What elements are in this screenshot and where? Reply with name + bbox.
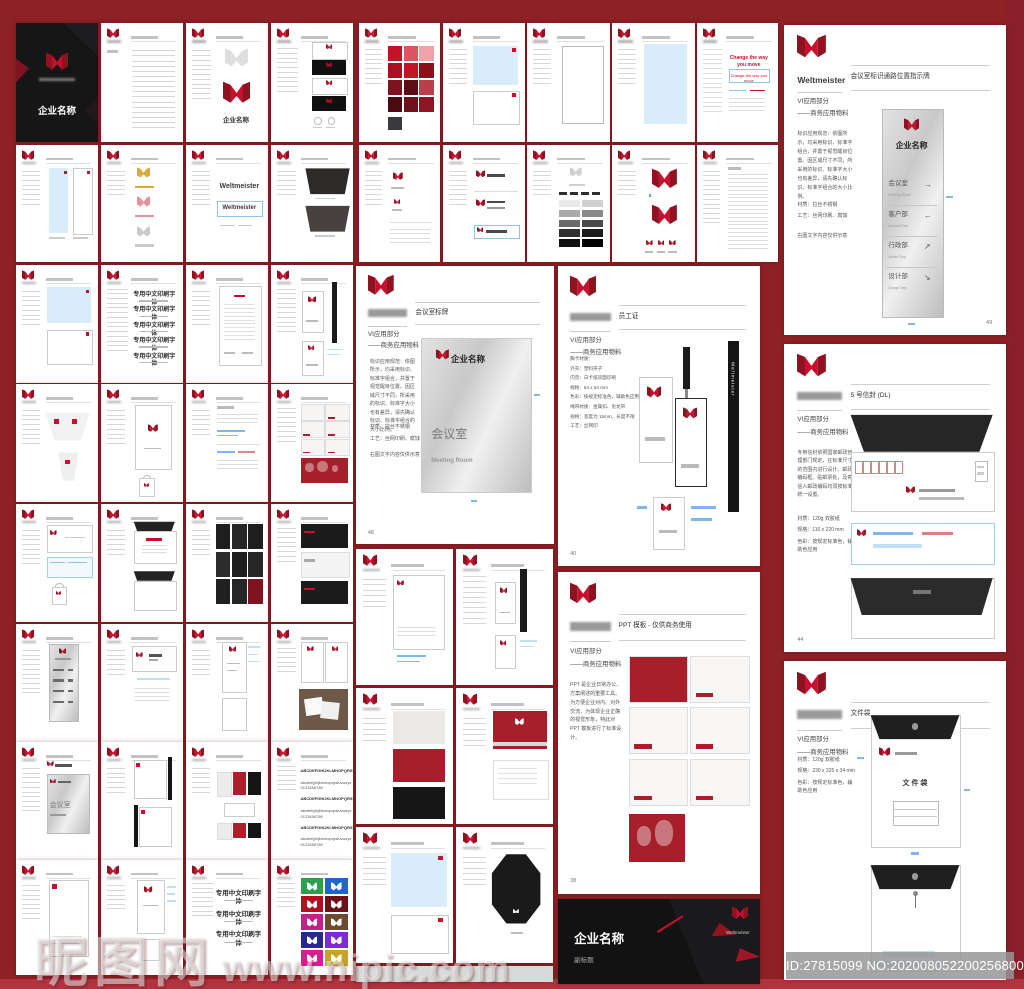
text-line-decor xyxy=(277,648,297,649)
brand-logo-icon xyxy=(476,199,485,207)
text-line-decor xyxy=(365,194,383,195)
brand-logo-icon xyxy=(22,865,34,875)
text-line-decor xyxy=(277,48,298,49)
text-craft: 工艺：丝网印刷、腐蚀 xyxy=(370,436,420,443)
decor xyxy=(217,406,233,408)
text-line-decor xyxy=(277,441,297,442)
page-employee-card: VI应用部分——商务应用物料员工证40胸卡材质：外壳：塑料夹子内页：白卡纸双面印… xyxy=(558,266,760,566)
divider xyxy=(131,163,177,164)
brand-logo-icon xyxy=(22,270,34,280)
decor xyxy=(977,472,984,475)
divider xyxy=(726,163,771,164)
text-line-decor xyxy=(107,429,125,430)
text-line-decor xyxy=(107,326,128,327)
page-email-signature xyxy=(186,384,268,502)
decor xyxy=(873,532,913,535)
text-env_para: 专用信封依照国家邮政管理部门规定，在标准尺寸的范围内进行设计。邮政编码框、贴邮票… xyxy=(797,449,853,500)
text-line-decor xyxy=(703,111,722,112)
text-line-decor xyxy=(107,322,128,323)
text-line-decor xyxy=(463,607,486,608)
decor xyxy=(301,158,329,161)
decor xyxy=(134,531,177,564)
text-line-decor xyxy=(107,341,128,342)
brand-logo-icon xyxy=(192,865,204,875)
page-letterhead-simple xyxy=(16,860,98,975)
decor xyxy=(520,646,534,648)
text-line-decor xyxy=(22,683,40,684)
text-line-decor xyxy=(463,745,486,746)
tile xyxy=(301,404,326,421)
decor xyxy=(107,401,122,403)
decor xyxy=(52,884,57,889)
brand-logo-icon xyxy=(107,865,119,875)
text-line-decor xyxy=(449,73,467,74)
text-line-decor xyxy=(618,194,636,195)
decor xyxy=(657,251,665,252)
divider xyxy=(726,41,771,42)
decor xyxy=(222,698,247,731)
text-line-decor xyxy=(618,68,636,69)
text-line-decor xyxy=(52,940,82,941)
brand-logo-icon xyxy=(148,424,158,432)
text-line-decor xyxy=(134,692,170,693)
tile xyxy=(629,759,689,806)
text-line-decor xyxy=(703,92,722,93)
divider xyxy=(619,329,746,330)
text-line-decor xyxy=(192,180,210,181)
tile xyxy=(582,220,604,227)
decor xyxy=(277,40,292,42)
decor xyxy=(493,742,547,745)
text-line-decor xyxy=(192,55,212,56)
text-line-decor xyxy=(449,194,467,195)
text-line-decor xyxy=(363,873,386,874)
decor xyxy=(53,701,64,703)
text-line-decor xyxy=(449,189,467,190)
divider xyxy=(893,809,937,810)
text-line-decor xyxy=(192,892,213,893)
tile xyxy=(301,932,324,948)
tile xyxy=(582,229,604,236)
text-line-decor xyxy=(192,204,210,205)
text-line-decor xyxy=(533,49,551,50)
text-line-decor xyxy=(533,175,551,176)
text-line-decor xyxy=(463,857,486,858)
text-line-decor xyxy=(365,204,383,205)
text-line-decor xyxy=(192,171,210,172)
decor xyxy=(557,36,585,39)
text-line-decor xyxy=(728,221,769,222)
text-line-decor xyxy=(107,434,125,435)
decor xyxy=(46,755,74,758)
text-line-decor xyxy=(134,700,170,701)
decor xyxy=(977,466,984,469)
decor xyxy=(463,569,480,572)
text-latin: ABCDEFGHIJKLMNOPQRSTUVWXYZ xyxy=(301,796,349,802)
text-line-decor xyxy=(277,326,297,327)
text-line-decor xyxy=(729,102,765,103)
divider xyxy=(491,848,545,849)
decor xyxy=(136,763,140,767)
text-line-decor xyxy=(22,434,40,435)
text-line-decor xyxy=(192,429,210,430)
text-line-decor xyxy=(22,777,40,778)
text-line-decor xyxy=(132,50,175,51)
brand-logo-icon xyxy=(570,275,596,297)
page-logo-grayscale xyxy=(527,145,610,262)
text-line-decor xyxy=(533,78,551,79)
text-line-decor xyxy=(728,209,769,210)
brand-logo-icon xyxy=(50,779,56,784)
text-line-decor xyxy=(192,782,210,783)
text-line-decor xyxy=(703,49,722,50)
decor xyxy=(277,282,292,284)
text-line-decor xyxy=(277,67,298,68)
text-line-decor xyxy=(277,436,297,437)
text-line-decor xyxy=(192,911,213,912)
divider xyxy=(301,760,347,761)
brand-logo-icon xyxy=(277,509,289,519)
text-line-decor xyxy=(277,293,297,294)
text-line-decor xyxy=(107,289,128,290)
text-line-decor xyxy=(22,410,40,411)
tile xyxy=(325,439,350,456)
decor xyxy=(142,939,160,961)
text-wordmark: Weltmeister xyxy=(797,75,845,86)
decor xyxy=(703,162,718,164)
brand-logo-icon xyxy=(906,486,915,493)
text-line-decor xyxy=(533,54,551,55)
decor xyxy=(248,646,259,647)
page-blue-grid-annot xyxy=(356,827,453,963)
brand-logo-icon xyxy=(904,118,920,131)
text-line-decor xyxy=(277,892,295,893)
decor xyxy=(797,710,841,719)
page-cn-typeface: 专用中文印刷字体专用中文印刷字体专用中文印刷字体专用中文印刷字体专用中文印刷字体 xyxy=(101,265,183,383)
brand-logo-icon xyxy=(22,150,34,160)
decor xyxy=(887,461,895,474)
text-line-decor xyxy=(463,723,486,724)
page-logo-intro: 企业名称 xyxy=(186,23,268,142)
text-line-decor xyxy=(22,319,40,320)
brand-logo-icon xyxy=(661,503,671,511)
text-line-decor xyxy=(22,796,40,797)
tile xyxy=(248,524,263,549)
text-line-decor xyxy=(192,324,210,325)
tile xyxy=(325,932,348,948)
text-line-decor xyxy=(192,50,212,51)
decor xyxy=(946,196,953,198)
decor xyxy=(893,801,939,825)
brand-logo-icon xyxy=(277,150,289,160)
brand-logo-icon xyxy=(363,554,378,566)
text-line-decor xyxy=(277,775,297,776)
decor xyxy=(487,207,505,209)
brand-logo-icon xyxy=(363,693,378,705)
text-line-decor xyxy=(449,180,467,181)
decor xyxy=(327,354,340,355)
divider xyxy=(388,163,433,164)
decor xyxy=(328,434,335,435)
divider xyxy=(491,709,545,710)
divider xyxy=(216,402,262,403)
text-line-decor xyxy=(192,674,210,675)
vi-manual-board: 企业名称企业名称Change the way you moveChange th… xyxy=(0,0,1024,989)
text-line-decor xyxy=(533,185,551,186)
text-line-decor xyxy=(618,73,636,74)
text-line-decor xyxy=(107,908,125,909)
text-line-decor xyxy=(365,59,383,60)
decor xyxy=(149,659,159,661)
brand-logo-icon xyxy=(331,954,342,963)
brand-logo-icon xyxy=(477,227,484,232)
text-line-decor xyxy=(22,773,40,774)
brand-logo-icon xyxy=(277,389,289,399)
brand-logo-icon xyxy=(365,28,377,38)
tile xyxy=(325,878,348,894)
page-wordmark: WeltmeisterWeltmeister xyxy=(186,145,268,262)
decor xyxy=(533,162,548,164)
text-line-decor xyxy=(22,806,40,807)
divider xyxy=(46,283,92,284)
divider xyxy=(851,702,991,703)
text-vi1: VI应用部分 xyxy=(797,416,829,424)
text-line-decor xyxy=(533,180,551,181)
text-line-decor xyxy=(107,549,125,550)
brand-logo-icon xyxy=(192,270,204,280)
text-line-decor xyxy=(22,539,40,540)
text-cnfont: 专用中文印刷字体 xyxy=(214,890,263,907)
brand-logo-icon xyxy=(436,349,449,360)
decor xyxy=(238,225,251,227)
tile xyxy=(232,552,247,577)
divider xyxy=(473,41,519,42)
text-line-decor xyxy=(277,789,297,790)
page-blue-cards xyxy=(16,145,98,262)
decor xyxy=(393,575,445,650)
text-line-decor xyxy=(703,213,721,214)
tile xyxy=(325,404,350,421)
text-line-decor xyxy=(728,174,769,175)
text-line-decor xyxy=(132,86,175,87)
divider xyxy=(131,642,177,643)
text-line-decor xyxy=(107,194,125,195)
decor xyxy=(233,823,246,837)
text-t_env: 5 号信封 (DL) xyxy=(851,392,891,401)
text-line-decor xyxy=(277,303,297,304)
text-line-decor xyxy=(618,175,636,176)
text-line-decor xyxy=(365,185,383,186)
brand-logo-icon xyxy=(137,196,150,207)
decor xyxy=(216,517,244,520)
text-line-decor xyxy=(363,590,386,591)
text-line-decor xyxy=(729,110,765,111)
tile xyxy=(419,46,433,61)
decor xyxy=(393,711,445,744)
text-line-decor xyxy=(533,171,551,172)
text-line-decor xyxy=(107,415,125,416)
text-line-decor xyxy=(217,464,258,465)
text-line-decor xyxy=(463,602,486,603)
decor xyxy=(685,389,688,398)
text-meet_cn: 会议室 xyxy=(50,801,71,810)
brand-logo-icon xyxy=(326,80,333,85)
page-latin-typeface: ABCDEFGHIJKLMNOPQRSTUVWXYZabcdefghijklmn… xyxy=(271,742,353,860)
text-line-decor xyxy=(463,587,486,588)
decor xyxy=(305,463,313,472)
text-line-decor xyxy=(277,72,298,73)
text-line-decor xyxy=(192,549,210,550)
decor xyxy=(68,690,72,692)
page-letterhead-pair xyxy=(16,265,98,383)
brand-logo-icon xyxy=(647,386,661,398)
page-envelope-dl: VI应用部分——商务应用物料5 号信封 (DL)44专用信封依照国家邮政管理部门… xyxy=(784,344,1006,652)
text-line-decor xyxy=(107,659,125,660)
text-meet_cn: 会议室 xyxy=(431,427,467,443)
text-line-decor xyxy=(390,238,431,239)
decor xyxy=(39,78,75,81)
decor xyxy=(393,787,445,818)
text-line-decor xyxy=(107,298,128,299)
text-line-decor xyxy=(363,734,386,735)
tile xyxy=(404,80,418,95)
text-line-decor xyxy=(192,310,210,311)
text-line-decor xyxy=(277,91,298,92)
text-line-decor xyxy=(277,528,297,529)
decor xyxy=(570,192,578,196)
brand-logo-icon xyxy=(192,629,204,639)
decor xyxy=(167,900,177,901)
text-line-decor xyxy=(728,190,769,191)
decor xyxy=(315,235,335,237)
divider xyxy=(886,236,937,237)
text-line-decor xyxy=(192,773,210,774)
text-ppt_para: PPT 是企业日常办公、方案阐述的重要工具。为方便企业对内、对外交流，为体现企业… xyxy=(570,681,623,742)
decor xyxy=(131,637,159,640)
text-line-decor xyxy=(363,729,386,730)
tile xyxy=(690,759,750,806)
text-line-decor xyxy=(107,664,125,665)
text-line-decor xyxy=(397,627,436,628)
text-line-decor xyxy=(107,424,125,425)
text-line-decor xyxy=(22,296,40,297)
text-wordmark: Weltmeister xyxy=(730,362,736,397)
decor xyxy=(216,873,244,876)
brand-logo-icon xyxy=(308,296,316,303)
text-line-decor xyxy=(107,890,125,891)
text-line-decor xyxy=(192,88,212,89)
brand-logo-icon xyxy=(703,28,715,38)
text-line-decor xyxy=(277,62,298,63)
decor xyxy=(301,517,329,520)
text-line-decor xyxy=(365,171,383,172)
text-line-decor xyxy=(463,576,486,577)
tile xyxy=(404,63,418,78)
text-line-decor xyxy=(277,331,297,332)
text-line-decor xyxy=(365,199,383,200)
decor xyxy=(53,679,64,681)
brand-logo-icon xyxy=(797,34,826,58)
text-line-decor xyxy=(22,885,40,886)
decor xyxy=(217,451,235,453)
text-line-decor xyxy=(192,530,210,531)
text-line-decor xyxy=(363,595,386,596)
brand-logo-icon xyxy=(307,882,318,891)
brand-logo-icon xyxy=(277,865,289,875)
text-line-decor xyxy=(277,906,295,907)
divider xyxy=(851,90,991,91)
divider xyxy=(557,41,603,42)
brand-logo-icon xyxy=(463,554,478,566)
tile xyxy=(216,579,231,604)
decor xyxy=(139,478,156,497)
text-line-decor xyxy=(192,424,210,425)
tile xyxy=(404,46,418,61)
text-line-decor xyxy=(277,412,297,413)
text-vi1: VI应用部分 xyxy=(797,98,829,106)
text-line-decor xyxy=(192,60,212,61)
tile xyxy=(325,421,350,438)
text-line-decor xyxy=(107,350,128,351)
text-line-decor xyxy=(463,618,486,619)
text-p44: 44 xyxy=(797,637,803,644)
text-line-decor xyxy=(142,552,167,553)
divider xyxy=(46,522,92,523)
text-line-decor xyxy=(277,556,297,557)
text-line-decor xyxy=(22,692,40,693)
tile xyxy=(301,878,324,894)
text-line-decor xyxy=(22,650,40,651)
decor xyxy=(107,282,122,284)
text-line-decor xyxy=(192,650,210,651)
text-line-decor xyxy=(107,792,125,793)
text-line-decor xyxy=(277,185,297,186)
text-line-decor xyxy=(277,307,297,308)
text-slogan: Change the way you move xyxy=(729,73,768,83)
decor xyxy=(135,244,155,246)
page-file-bag-small xyxy=(101,504,183,622)
text-line-decor xyxy=(729,98,765,99)
decor xyxy=(68,562,86,564)
text-line-decor xyxy=(22,782,40,783)
text-line-decor xyxy=(192,544,210,545)
text-line-decor xyxy=(277,532,297,533)
divider xyxy=(216,41,262,42)
page-grid-card xyxy=(443,23,525,142)
text-line-decor xyxy=(277,888,295,889)
brand-logo-icon xyxy=(449,150,461,160)
text-latin: ABCDEFGHIJKLMNOPQRSTUVWXYZ xyxy=(301,825,349,831)
divider xyxy=(391,570,445,571)
brand-logo-icon xyxy=(476,170,485,178)
text-line-decor xyxy=(192,434,210,435)
decor xyxy=(46,397,74,400)
text-line-decor xyxy=(52,943,82,944)
page-paper-cups xyxy=(16,384,98,502)
text-t_emp: 员工证 xyxy=(619,313,639,322)
decor xyxy=(139,362,169,363)
brand-logo-icon xyxy=(326,44,333,49)
text-line-decor xyxy=(22,549,40,550)
decor xyxy=(919,497,963,500)
brand-logo-icon xyxy=(533,28,545,38)
decor xyxy=(314,117,322,125)
decor xyxy=(644,44,687,124)
text-p40: 40 xyxy=(570,551,576,558)
text-line-decor xyxy=(463,734,486,735)
text-line-decor xyxy=(449,83,467,84)
page-letterhead-bag xyxy=(16,504,98,622)
